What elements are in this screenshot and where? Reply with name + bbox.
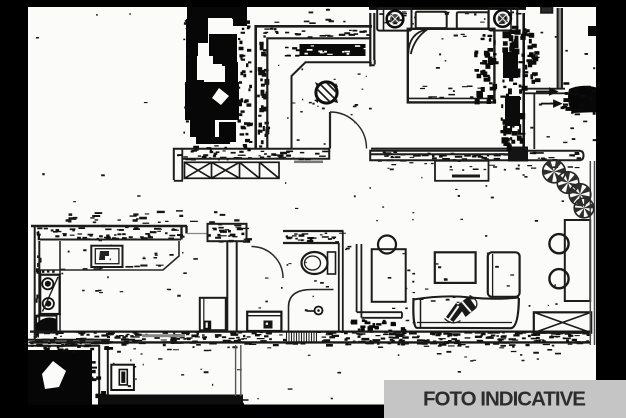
svg-text:FOTO INDICATIVE: FOTO INDICATIVE xyxy=(423,388,585,411)
